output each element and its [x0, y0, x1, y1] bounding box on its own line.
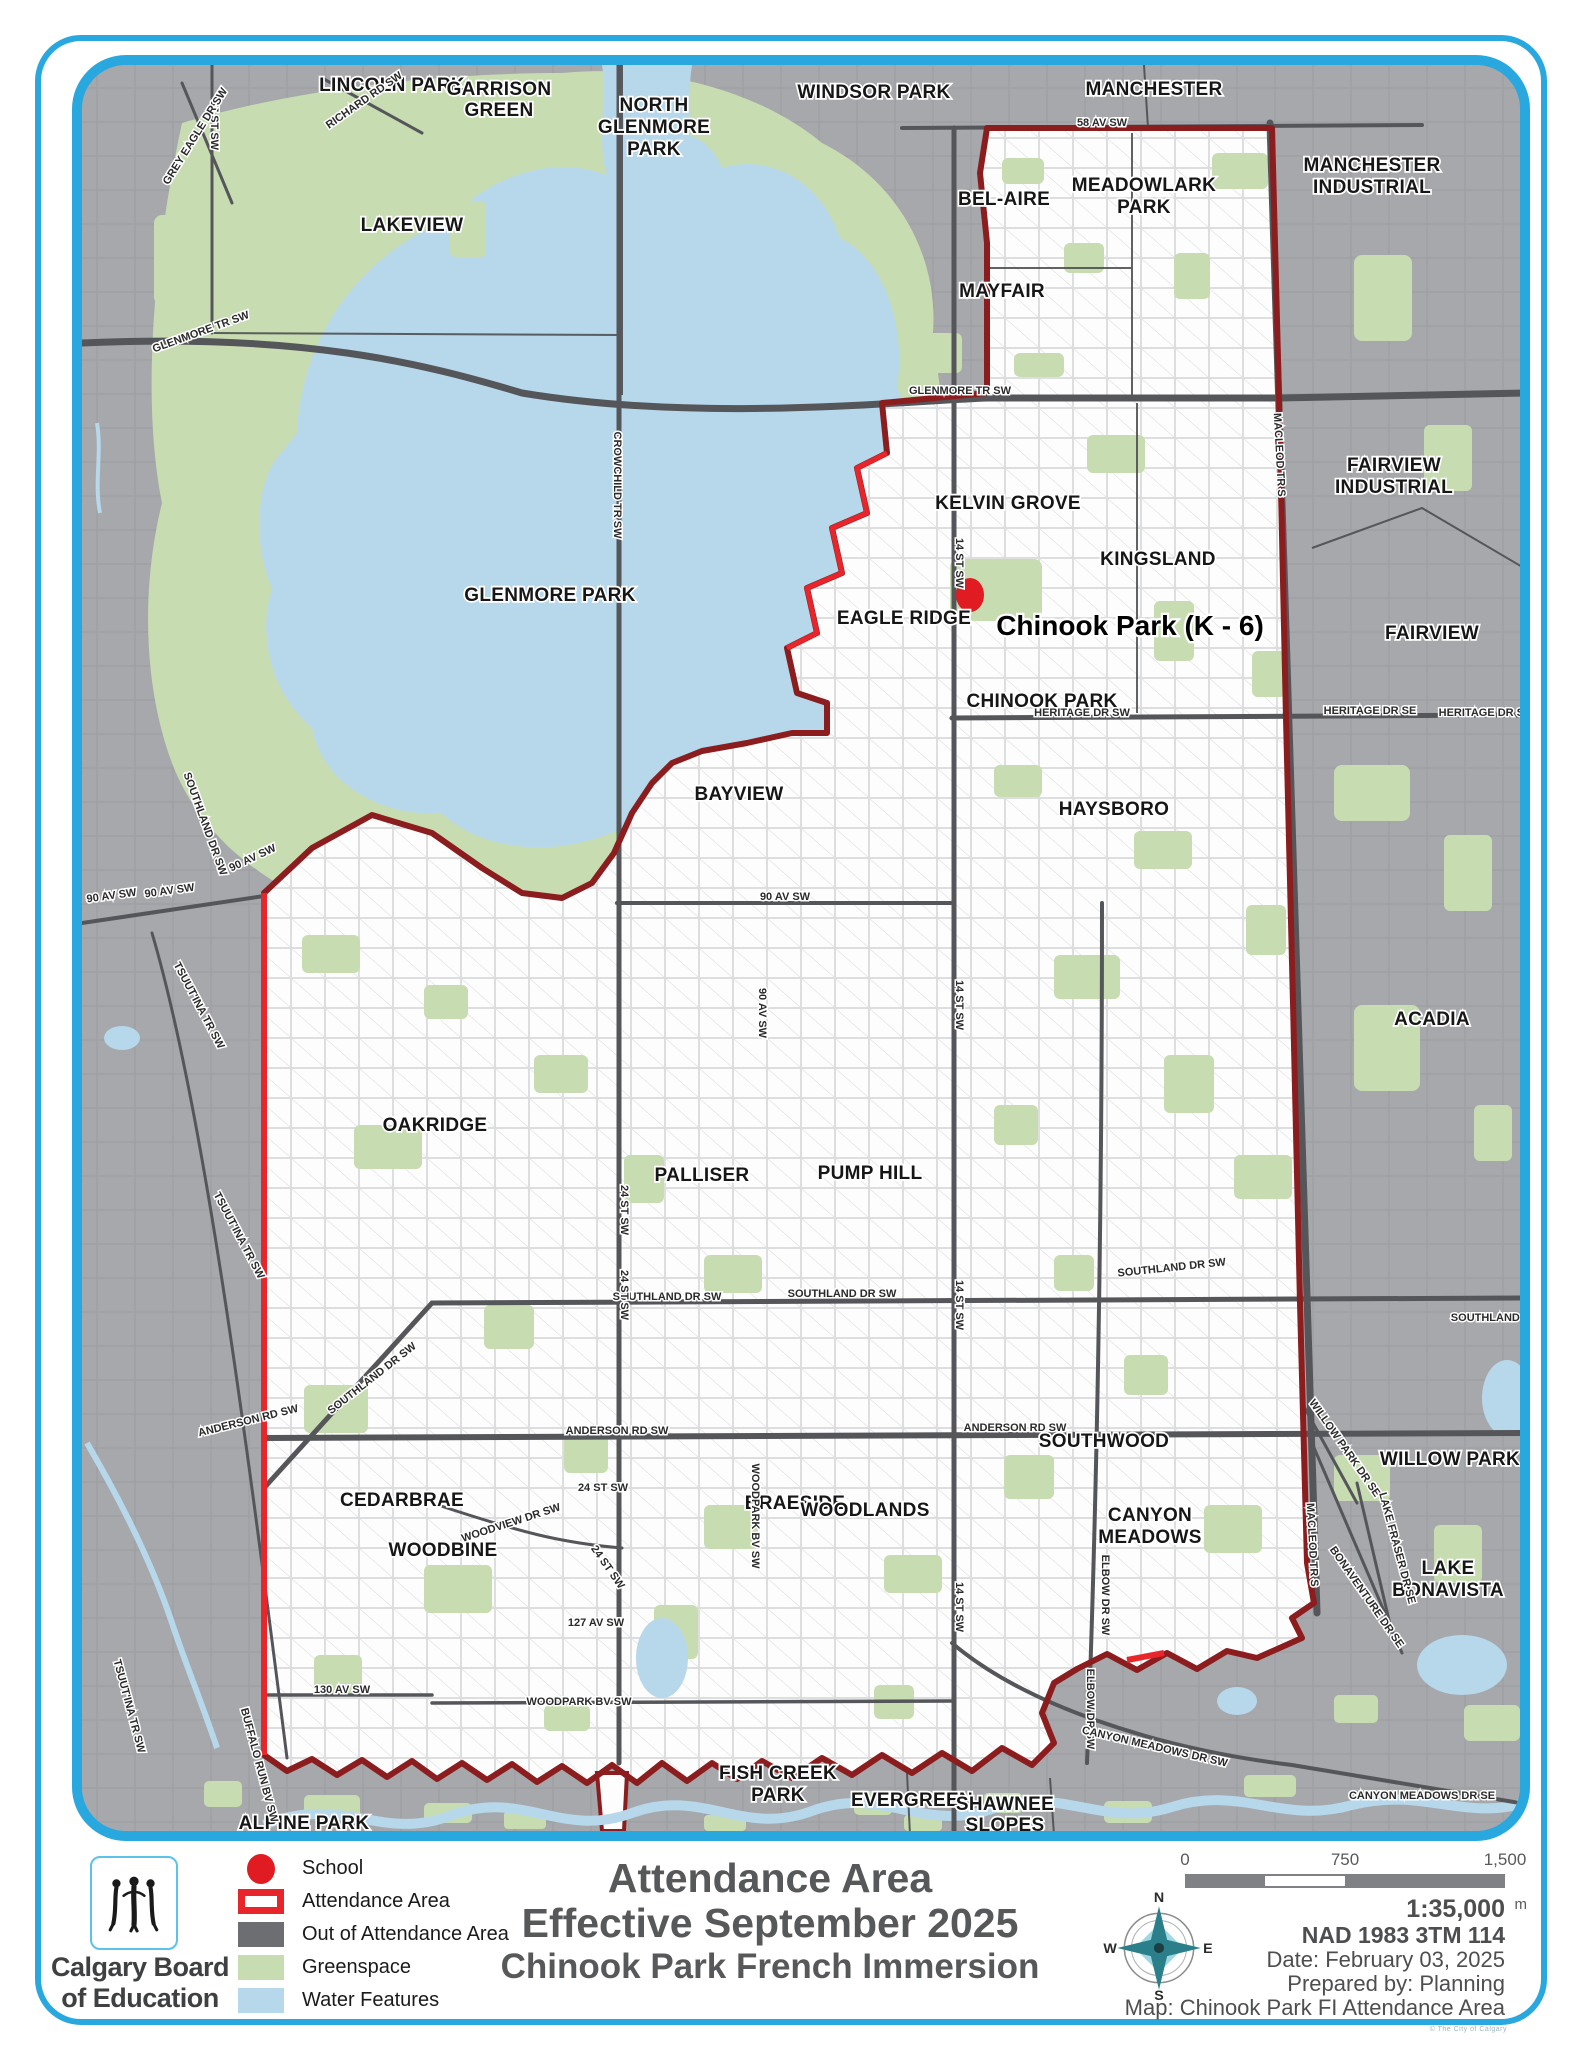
map-date: Date: February 03, 2025 [1040, 1948, 1505, 1972]
map-frame: LINCOLN PARKGARRISONGREENNORTHGLENMOREPA… [72, 55, 1530, 1841]
legend-label-green: Greenspace [302, 1956, 411, 1979]
map-label-manchester: MANCHESTER [1085, 79, 1222, 100]
street-label-24-st-sw: 24 ST SW [578, 1482, 629, 1494]
map-label-bel-aire: BEL-AIRE [958, 189, 1050, 210]
legend-label-attendance: Attendance Area [302, 1890, 450, 1913]
scale-bar-ticks: 0 750 1,500 [1185, 1850, 1505, 1870]
map-label-glenmore-park: GLENMORE PARK [464, 585, 635, 606]
scale-bar-unit: m [1515, 1896, 1528, 1913]
legend: SchoolAttendance AreaOut of Attendance A… [238, 1852, 509, 2017]
map-label-fairview: FAIRVIEW [1385, 623, 1479, 644]
map-label-industrial: INDUSTRIAL [1335, 477, 1453, 498]
map-label-cedarbrae: CEDARBRAE [340, 1490, 464, 1511]
map-label-willow-park: WILLOW PARK [1380, 1449, 1520, 1470]
title-line2: Effective September 2025 [480, 1900, 1060, 1946]
street-label-glenmore-tr-sw: GLENMORE TR SW [909, 385, 1012, 397]
map-datum: NAD 1983 3TM 114 [1040, 1923, 1505, 1948]
street-label-24-st-sw: 24 ST SW [618, 1270, 630, 1321]
scale-bar-rule: m [1185, 1874, 1505, 1888]
street-label-elbow-dr-sw: ELBOW DR SW [1099, 1555, 1111, 1636]
map-label-shawnee: SHAWNEE [956, 1794, 1054, 1815]
legend-swatch-water-icon [238, 1988, 284, 2013]
map-label-kingsland: KINGSLAND [1100, 549, 1216, 570]
street-label-90-av-sw: 90 AV SW [760, 891, 811, 903]
street-label-24-st-sw: 24 ST SW [618, 1185, 630, 1236]
map-label-woodlands: WOODLANDS [800, 1500, 929, 1521]
legend-swatch-school-icon [247, 1854, 275, 1884]
map-scale-ratio: 1:35,000 [1040, 1896, 1505, 1923]
fine-print: © The City of Calgary [1095, 2026, 1507, 2033]
street-label-127-av-sw: 127 AV SW [568, 1617, 625, 1629]
legend-label-school: School [302, 1857, 363, 1880]
map-label-kelvin-grove: KELVIN GROVE [935, 493, 1081, 514]
school-label-chinook-park-k-6-: Chinook Park (K - 6) [996, 610, 1264, 641]
cbe-logo-text: Calgary Board of Education [40, 1952, 240, 2014]
street-label-heritage-dr-se: HERITAGE DR SE [1439, 707, 1520, 719]
street-label-58-av-sw: 58 AV SW [1077, 117, 1128, 129]
map-label-palliser: PALLISER [655, 1165, 750, 1186]
map-label-park: PARK [1117, 197, 1171, 218]
street-label-southland-dr-sw: SOUTHLAND DR SW [788, 1288, 897, 1300]
street-label-crowchild-tr-sw: CROWCHILD TR SW [611, 432, 623, 540]
scale-bar: 0 750 1,500 m [1185, 1850, 1505, 1888]
map-label-alpine-park: ALPINE PARK [239, 1813, 370, 1831]
map-label-manchester: MANCHESTER [1303, 155, 1440, 176]
street-label-130-av-sw: 130 AV SW [314, 1684, 371, 1696]
map-label-lakeview: LAKEVIEW [361, 215, 464, 236]
cbe-logo-figures-icon [103, 1872, 165, 1934]
street-label-woodpark-bv-sw: WOODPARK BV SW [527, 1696, 633, 1708]
scale-tick-0: 0 [1180, 1850, 1189, 1870]
map-label-industrial: INDUSTRIAL [1313, 177, 1431, 198]
legend-label-out: Out of Attendance Area [302, 1923, 509, 1946]
map-label-mayfair: MAYFAIR [959, 281, 1045, 302]
map-label-meadows: MEADOWS [1098, 1527, 1201, 1548]
map-prepared-by: Prepared by: Planning [1040, 1972, 1505, 1996]
map-label-southwood: SOUTHWOOD [1039, 1431, 1169, 1452]
map-label-lake: LAKE [1422, 1558, 1475, 1579]
street-label-90-av-sw: 90 AV SW [756, 988, 768, 1039]
map-label-acadia: ACADIA [1394, 1009, 1470, 1030]
map-label-park: PARK [627, 139, 681, 160]
map-label-park: PARK [751, 1785, 805, 1806]
map-label-oakridge: OAKRIDGE [383, 1115, 488, 1136]
cbe-logo-line1: Calgary Board [40, 1952, 240, 1983]
street-label-14-st-sw: 14 ST SW [953, 1280, 965, 1331]
map-label-garrison: GARRISON [447, 79, 552, 100]
cbe-logo [90, 1856, 178, 1950]
street-label-14-st-sw: 14 ST SW [953, 1582, 965, 1633]
map-label-bayview: BAYVIEW [694, 784, 783, 805]
map-label-glenmore: GLENMORE [598, 117, 710, 138]
street-label-14-st-sw: 14 ST SW [953, 538, 965, 589]
street-label-anderson-rd-sw: ANDERSON RD SW [566, 1425, 669, 1437]
map-label-haysboro: HAYSBORO [1059, 799, 1169, 820]
map-label-green: GREEN [464, 100, 533, 121]
map-label-woodbine: WOODBINE [388, 1540, 497, 1561]
street-label-southland-dr-s: SOUTHLAND DR S [1451, 1312, 1520, 1324]
legend-item-green: Greenspace [238, 1951, 509, 1984]
scale-tick-750: 750 [1331, 1850, 1359, 1870]
street-label-heritage-dr-sw: HERITAGE DR SW [1034, 707, 1130, 719]
map-title: Attendance Area Effective September 2025… [480, 1856, 1060, 1988]
street-label-canyon-meadows-dr-se: CANYON MEADOWS DR SE [1349, 1790, 1495, 1802]
cbe-logo-line2: of Education [40, 1983, 240, 2014]
street-label-heritage-dr-se: HERITAGE DR SE [1324, 705, 1417, 717]
street-label-woodpark-bv-sw: WOODPARK BV SW [749, 1464, 761, 1570]
map-label-slopes: SLOPES [966, 1815, 1045, 1831]
map-info-block: 1:35,000 NAD 1983 3TM 114 Date: February… [1040, 1896, 1505, 2020]
title-line3: Chinook Park French Immersion [480, 1946, 1060, 1988]
map-label-north: NORTH [619, 95, 688, 116]
legend-item-out: Out of Attendance Area [238, 1918, 509, 1951]
map-canvas: LINCOLN PARKGARRISONGREENNORTHGLENMOREPA… [82, 65, 1520, 1831]
legend-item-water: Water Features [238, 1984, 509, 2017]
legend-label-water: Water Features [302, 1989, 439, 2012]
map-label-fish-creek: FISH CREEK [719, 1763, 837, 1784]
street-label-anderson-rd-sw: ANDERSON RD SW [964, 1422, 1067, 1434]
map-label-evergreen: EVERGREEN [851, 1790, 973, 1811]
map-name: Map: Chinook Park FI Attendance Area [1040, 1996, 1505, 2020]
legend-swatch-green-icon [238, 1955, 284, 1980]
street-label-14-st-sw: 14 ST SW [953, 980, 965, 1031]
page: LINCOLN PARKGARRISONGREENNORTHGLENMOREPA… [0, 0, 1582, 2048]
map-label-meadowlark: MEADOWLARK [1072, 175, 1216, 196]
legend-swatch-out-icon [238, 1922, 284, 1947]
scale-tick-1500: 1,500 [1484, 1850, 1527, 1870]
map-label-pump-hill: PUMP HILL [818, 1163, 923, 1184]
legend-item-school: School [238, 1852, 509, 1885]
map-label-windsor-park: WINDSOR PARK [797, 82, 950, 103]
map-label-fairview: FAIRVIEW [1347, 455, 1441, 476]
legend-swatch-attendance-icon [238, 1889, 284, 1914]
scale-bar-segment [1265, 1876, 1345, 1886]
map-label-canyon: CANYON [1108, 1505, 1192, 1526]
title-line1: Attendance Area [480, 1856, 1060, 1900]
map-label-eagle-ridge: EAGLE RIDGE [837, 608, 971, 629]
legend-item-attendance: Attendance Area [238, 1885, 509, 1918]
